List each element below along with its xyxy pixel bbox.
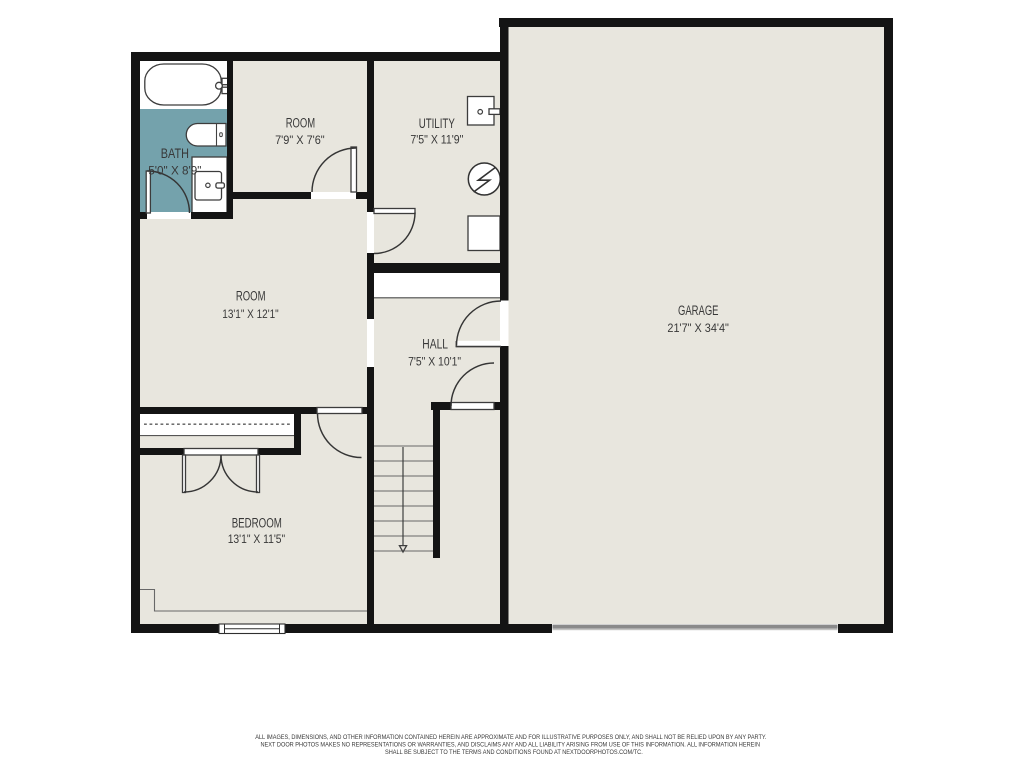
svg-text:BEDROOM: BEDROOM xyxy=(232,516,282,531)
svg-text:7'5" X 11'9": 7'5" X 11'9" xyxy=(410,133,463,147)
svg-text:NEXT DOOR PHOTOS MAKES NO REPR: NEXT DOOR PHOTOS MAKES NO REPRESENTATION… xyxy=(261,741,761,748)
svg-text:BATH: BATH xyxy=(161,146,189,161)
svg-text:13'1" X 12'1": 13'1" X 12'1" xyxy=(222,307,278,321)
svg-text:UTILITY: UTILITY xyxy=(419,116,455,131)
svg-text:ROOM: ROOM xyxy=(286,115,315,130)
svg-text:ROOM: ROOM xyxy=(236,289,266,304)
svg-text:5'0" X 8'9": 5'0" X 8'9" xyxy=(148,164,201,178)
svg-text:SHALL BE SUBJECT TO THE TERMS: SHALL BE SUBJECT TO THE TERMS AND CONDIT… xyxy=(385,749,643,756)
svg-text:13'1" X 11'5": 13'1" X 11'5" xyxy=(228,532,286,546)
svg-text:7'5" X 10'1": 7'5" X 10'1" xyxy=(408,355,461,369)
svg-text:7'9" X 7'6": 7'9" X 7'6" xyxy=(275,133,325,147)
svg-text:GARAGE: GARAGE xyxy=(678,303,719,318)
svg-text:HALL: HALL xyxy=(422,336,448,351)
svg-text:ALL IMAGES, DIMENSIONS, AND OT: ALL IMAGES, DIMENSIONS, AND OTHER INFORM… xyxy=(255,734,766,741)
svg-text:21'7" X 34'4": 21'7" X 34'4" xyxy=(667,321,729,335)
